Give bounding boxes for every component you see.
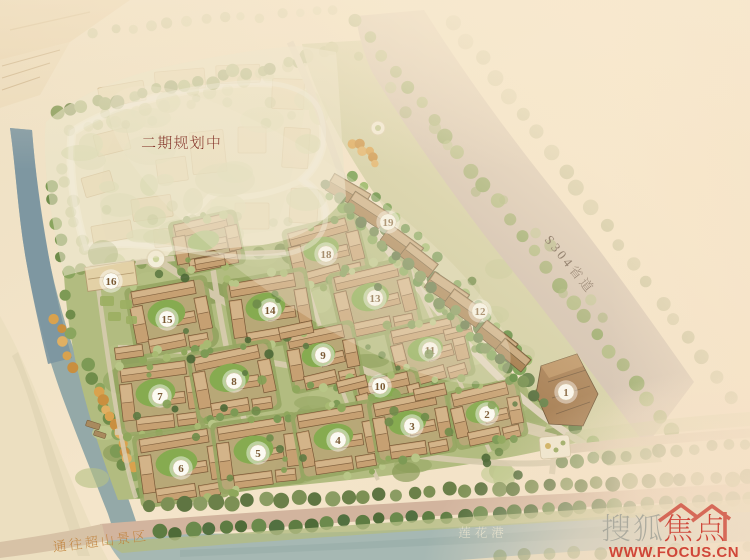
svg-text:WWW.FOCUS.CN: WWW.FOCUS.CN bbox=[609, 544, 739, 560]
